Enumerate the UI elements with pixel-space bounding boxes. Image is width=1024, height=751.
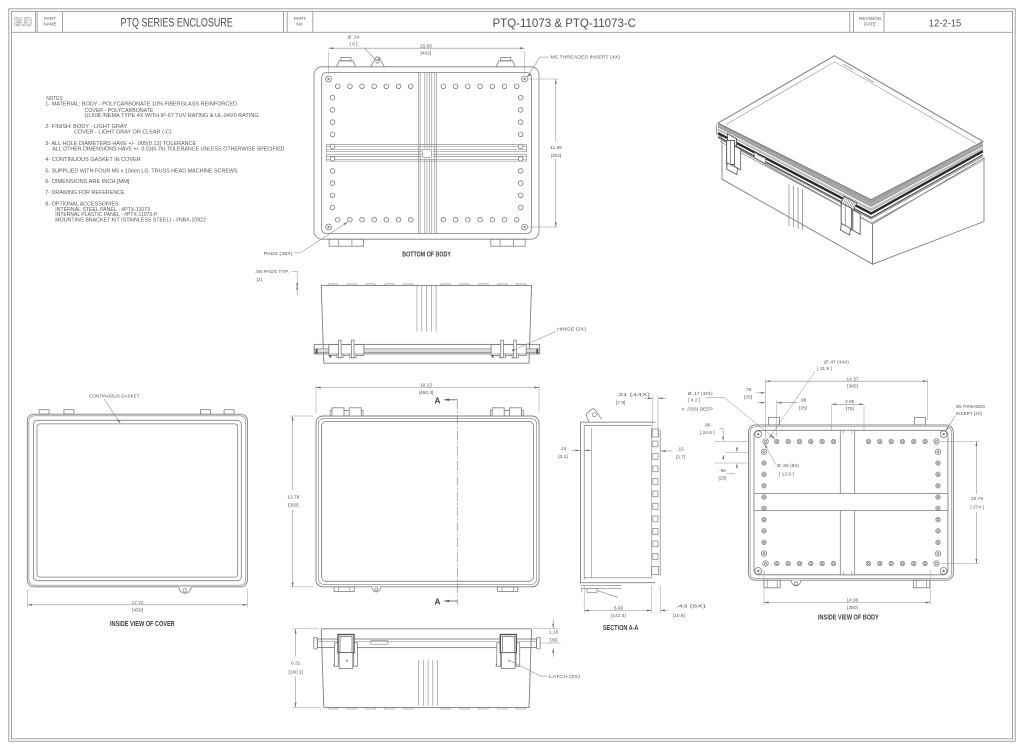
svg-text:1- MATERIAL: BODY - POLYCAR: 1- MATERIAL: BODY - POLYCARBONATE 10% FI… <box>45 102 237 108</box>
svg-text:Ø .55 (8X): Ø .55 (8X) <box>777 463 800 469</box>
svg-text:Ø .47 (44X): Ø .47 (44X) <box>824 359 849 365</box>
svg-text:[3.7]: [3.7] <box>676 455 685 461</box>
svg-text:CONTINUOUS GASKET: CONTINUOUS GASKET <box>89 394 139 400</box>
svg-text:UL508 /NEMA TYPE 4X WITH IP-67: UL508 /NEMA TYPE 4X WITH IP-67 TUV RATIN… <box>85 113 259 119</box>
svg-text:[30]: [30] <box>549 637 557 643</box>
svg-text:M5 THREADED: M5 THREADED <box>956 404 985 410</box>
svg-text:PTQ-11073 & PTQ-11073-C: PTQ-11073 & PTQ-11073-C <box>493 16 637 30</box>
svg-text:BOTTOM OF BODY: BOTTOM OF BODY <box>402 250 451 259</box>
svg-text:.98: .98 <box>719 468 726 474</box>
svg-text:COVER - LIGHT GRAY OR CLEAR (-: COVER - LIGHT GRAY OR CLEAR (-C) <box>74 130 172 136</box>
svg-text:[ 4.2 ]: [ 4.2 ] <box>688 398 700 404</box>
svg-text:[402]: [402] <box>420 51 431 57</box>
svg-text:SECTION A-A: SECTION A-A <box>603 623 639 632</box>
svg-text:12-2-15: 12-2-15 <box>929 18 962 29</box>
svg-text:.13: .13 <box>560 446 567 452</box>
svg-text:[ 274 ]: [ 274 ] <box>970 504 983 510</box>
svg-text:5.60: 5.60 <box>614 606 624 612</box>
svg-text:.98: .98 <box>800 398 807 404</box>
svg-text:A: A <box>435 598 441 607</box>
svg-text:x .23(6) DEEP: x .23(6) DEEP <box>682 406 713 412</box>
svg-text:18.13: 18.13 <box>420 383 432 389</box>
svg-text:[160.1]: [160.1] <box>288 670 303 676</box>
svg-text:[ 6 ]: [ 6 ] <box>350 42 358 48</box>
svg-text:[302]: [302] <box>551 153 562 159</box>
svg-text:[365]: [365] <box>847 384 858 390</box>
svg-text:[450]: [450] <box>132 607 143 613</box>
svg-text:[25]: [25] <box>799 406 807 412</box>
svg-text:4- CONTINUOUS GASKET IN COVER: 4- CONTINUOUS GASKET IN COVER <box>45 157 141 163</box>
svg-text:11.89: 11.89 <box>550 145 562 151</box>
svg-text:[20]: [20] <box>744 395 752 401</box>
svg-text:15.83: 15.83 <box>420 43 432 49</box>
svg-text:5- SUPPLIED WITH FOUR M5 x 10m: 5- SUPPLIED WITH FOUR M5 x 10mm LG. TRUS… <box>45 168 238 174</box>
svg-text:7- DRAWING FOR REFERENCE: 7- DRAWING FOR REFERENCE <box>45 190 125 196</box>
svg-text:[75]: [75] <box>846 406 854 412</box>
svg-text:.08 PADS TYP.: .08 PADS TYP. <box>255 269 289 275</box>
svg-text:Ø .17 (44X): Ø .17 (44X) <box>688 391 713 397</box>
svg-text:.43 (8X): .43 (8X) <box>676 604 707 610</box>
svg-text:[142.4]: [142.4] <box>611 613 626 619</box>
svg-text:2.95: 2.95 <box>845 399 855 405</box>
svg-text:No.: No. <box>296 22 303 27</box>
svg-text:.79: .79 <box>745 387 752 393</box>
svg-text:NAME: NAME <box>43 22 56 27</box>
svg-text:[350]: [350] <box>288 502 299 508</box>
svg-text:M5 THREADED INSERT (4X): M5 THREADED INSERT (4X) <box>551 54 621 60</box>
svg-text:PART: PART <box>294 16 306 21</box>
svg-text:LATCH (2X): LATCH (2X) <box>549 674 580 680</box>
svg-text:[ 13.9 ]: [ 13.9 ] <box>779 471 794 477</box>
svg-text:10.79: 10.79 <box>971 496 983 502</box>
svg-text:BUD: BUD <box>14 17 32 29</box>
svg-text:[460.4]: [460.4] <box>419 390 434 396</box>
svg-text:14.96: 14.96 <box>846 598 858 604</box>
svg-text:INSERT [4X]: INSERT [4X] <box>956 411 982 417</box>
svg-text:[2]: [2] <box>257 277 262 283</box>
svg-text:6.31: 6.31 <box>291 661 301 667</box>
svg-text:A: A <box>435 396 441 405</box>
svg-text:13.78: 13.78 <box>287 494 299 500</box>
svg-text:[3.2]: [3.2] <box>558 454 567 460</box>
svg-text:HINGE (2X): HINGE (2X) <box>557 327 586 333</box>
svg-text:PTQ SERIES ENCLOSURE: PTQ SERIES ENCLOSURE <box>121 16 233 30</box>
svg-text:PADS (48X): PADS (48X) <box>264 251 293 257</box>
svg-text:[ 11.9 ]: [ 11.9 ] <box>817 366 831 372</box>
svg-text:INSIDE VIEW OF BODY: INSIDE VIEW OF BODY <box>818 613 879 622</box>
svg-text:.15: .15 <box>677 447 684 453</box>
svg-text:1.18: 1.18 <box>549 630 559 636</box>
svg-text:DATE: DATE <box>864 22 876 27</box>
svg-text:14.37: 14.37 <box>846 376 858 382</box>
svg-text:[7.8]: [7.8] <box>616 400 625 406</box>
svg-text:6- DIMENSIONS ARE INCH [MM]: 6- DIMENSIONS ARE INCH [MM] <box>45 179 130 185</box>
svg-text:.31 (44X): .31 (44X) <box>616 392 651 398</box>
svg-text:INSIDE VIEW OF COVER: INSIDE VIEW OF COVER <box>110 619 175 628</box>
svg-text:[25]: [25] <box>718 475 726 481</box>
svg-text:ALL OTHER DIMENSIONS HAVE +/-: ALL OTHER DIMENSIONS HAVE +/- 0.03(0.76)… <box>52 146 285 152</box>
svg-text:MOUNTING BRACKET KIT (STAINLES: MOUNTING BRACKET KIT (STAINLESS STEEL) -… <box>55 218 206 224</box>
svg-text:Ø .24: Ø .24 <box>348 35 360 41</box>
svg-text:[ 24.5 ]: [ 24.5 ] <box>700 430 715 436</box>
svg-text:[380]: [380] <box>847 605 858 611</box>
svg-text:REVISION: REVISION <box>859 16 881 21</box>
svg-text:PART: PART <box>44 16 56 21</box>
svg-text:17.72: 17.72 <box>132 600 144 606</box>
svg-text:[10.9]: [10.9] <box>673 613 685 619</box>
svg-text:.96: .96 <box>704 423 711 429</box>
